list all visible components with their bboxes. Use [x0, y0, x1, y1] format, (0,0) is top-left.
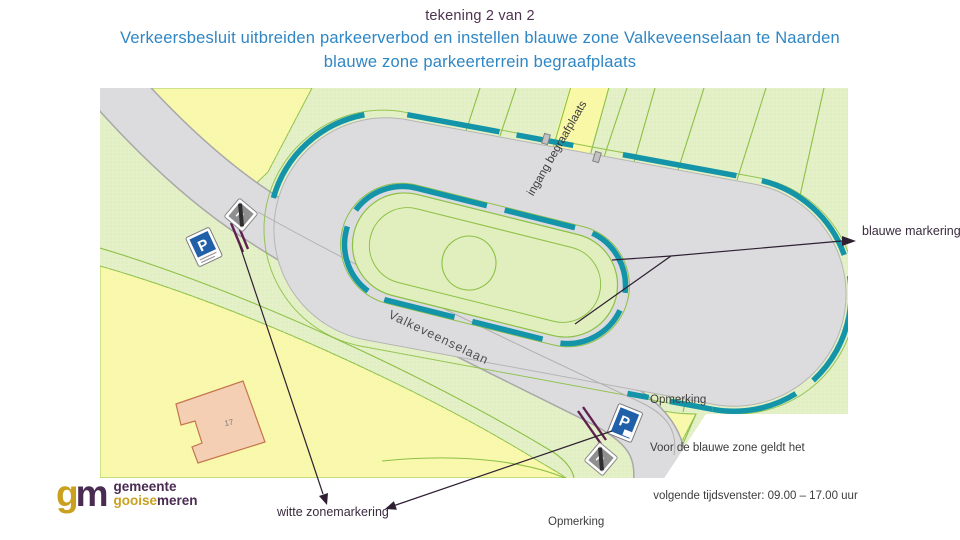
- white-zone-label: witte zonemarkering: [277, 505, 389, 519]
- logo-mark: gm: [56, 477, 106, 511]
- logo-name: gemeente gooisemeren: [114, 480, 198, 508]
- municipality-logo: gm gemeente gooisemeren: [56, 477, 198, 511]
- note-disclaimer: Opmerking locatie, vorm en kleur markeri…: [548, 484, 848, 540]
- logo-name-line1: gemeente: [114, 480, 198, 494]
- blue-marking-label: blauwe markering: [862, 224, 960, 238]
- note-disclaimer-title: Opmerking: [548, 515, 848, 531]
- note-blue-zone-title: Opmerking: [650, 392, 858, 408]
- drawing-page: tekening 2 van 2 Verkeersbesluit uitbrei…: [0, 0, 960, 540]
- note-blue-zone-line1: Voor de blauwe zone geldt het: [650, 440, 858, 456]
- logo-name-line2: gooisemeren: [114, 494, 198, 508]
